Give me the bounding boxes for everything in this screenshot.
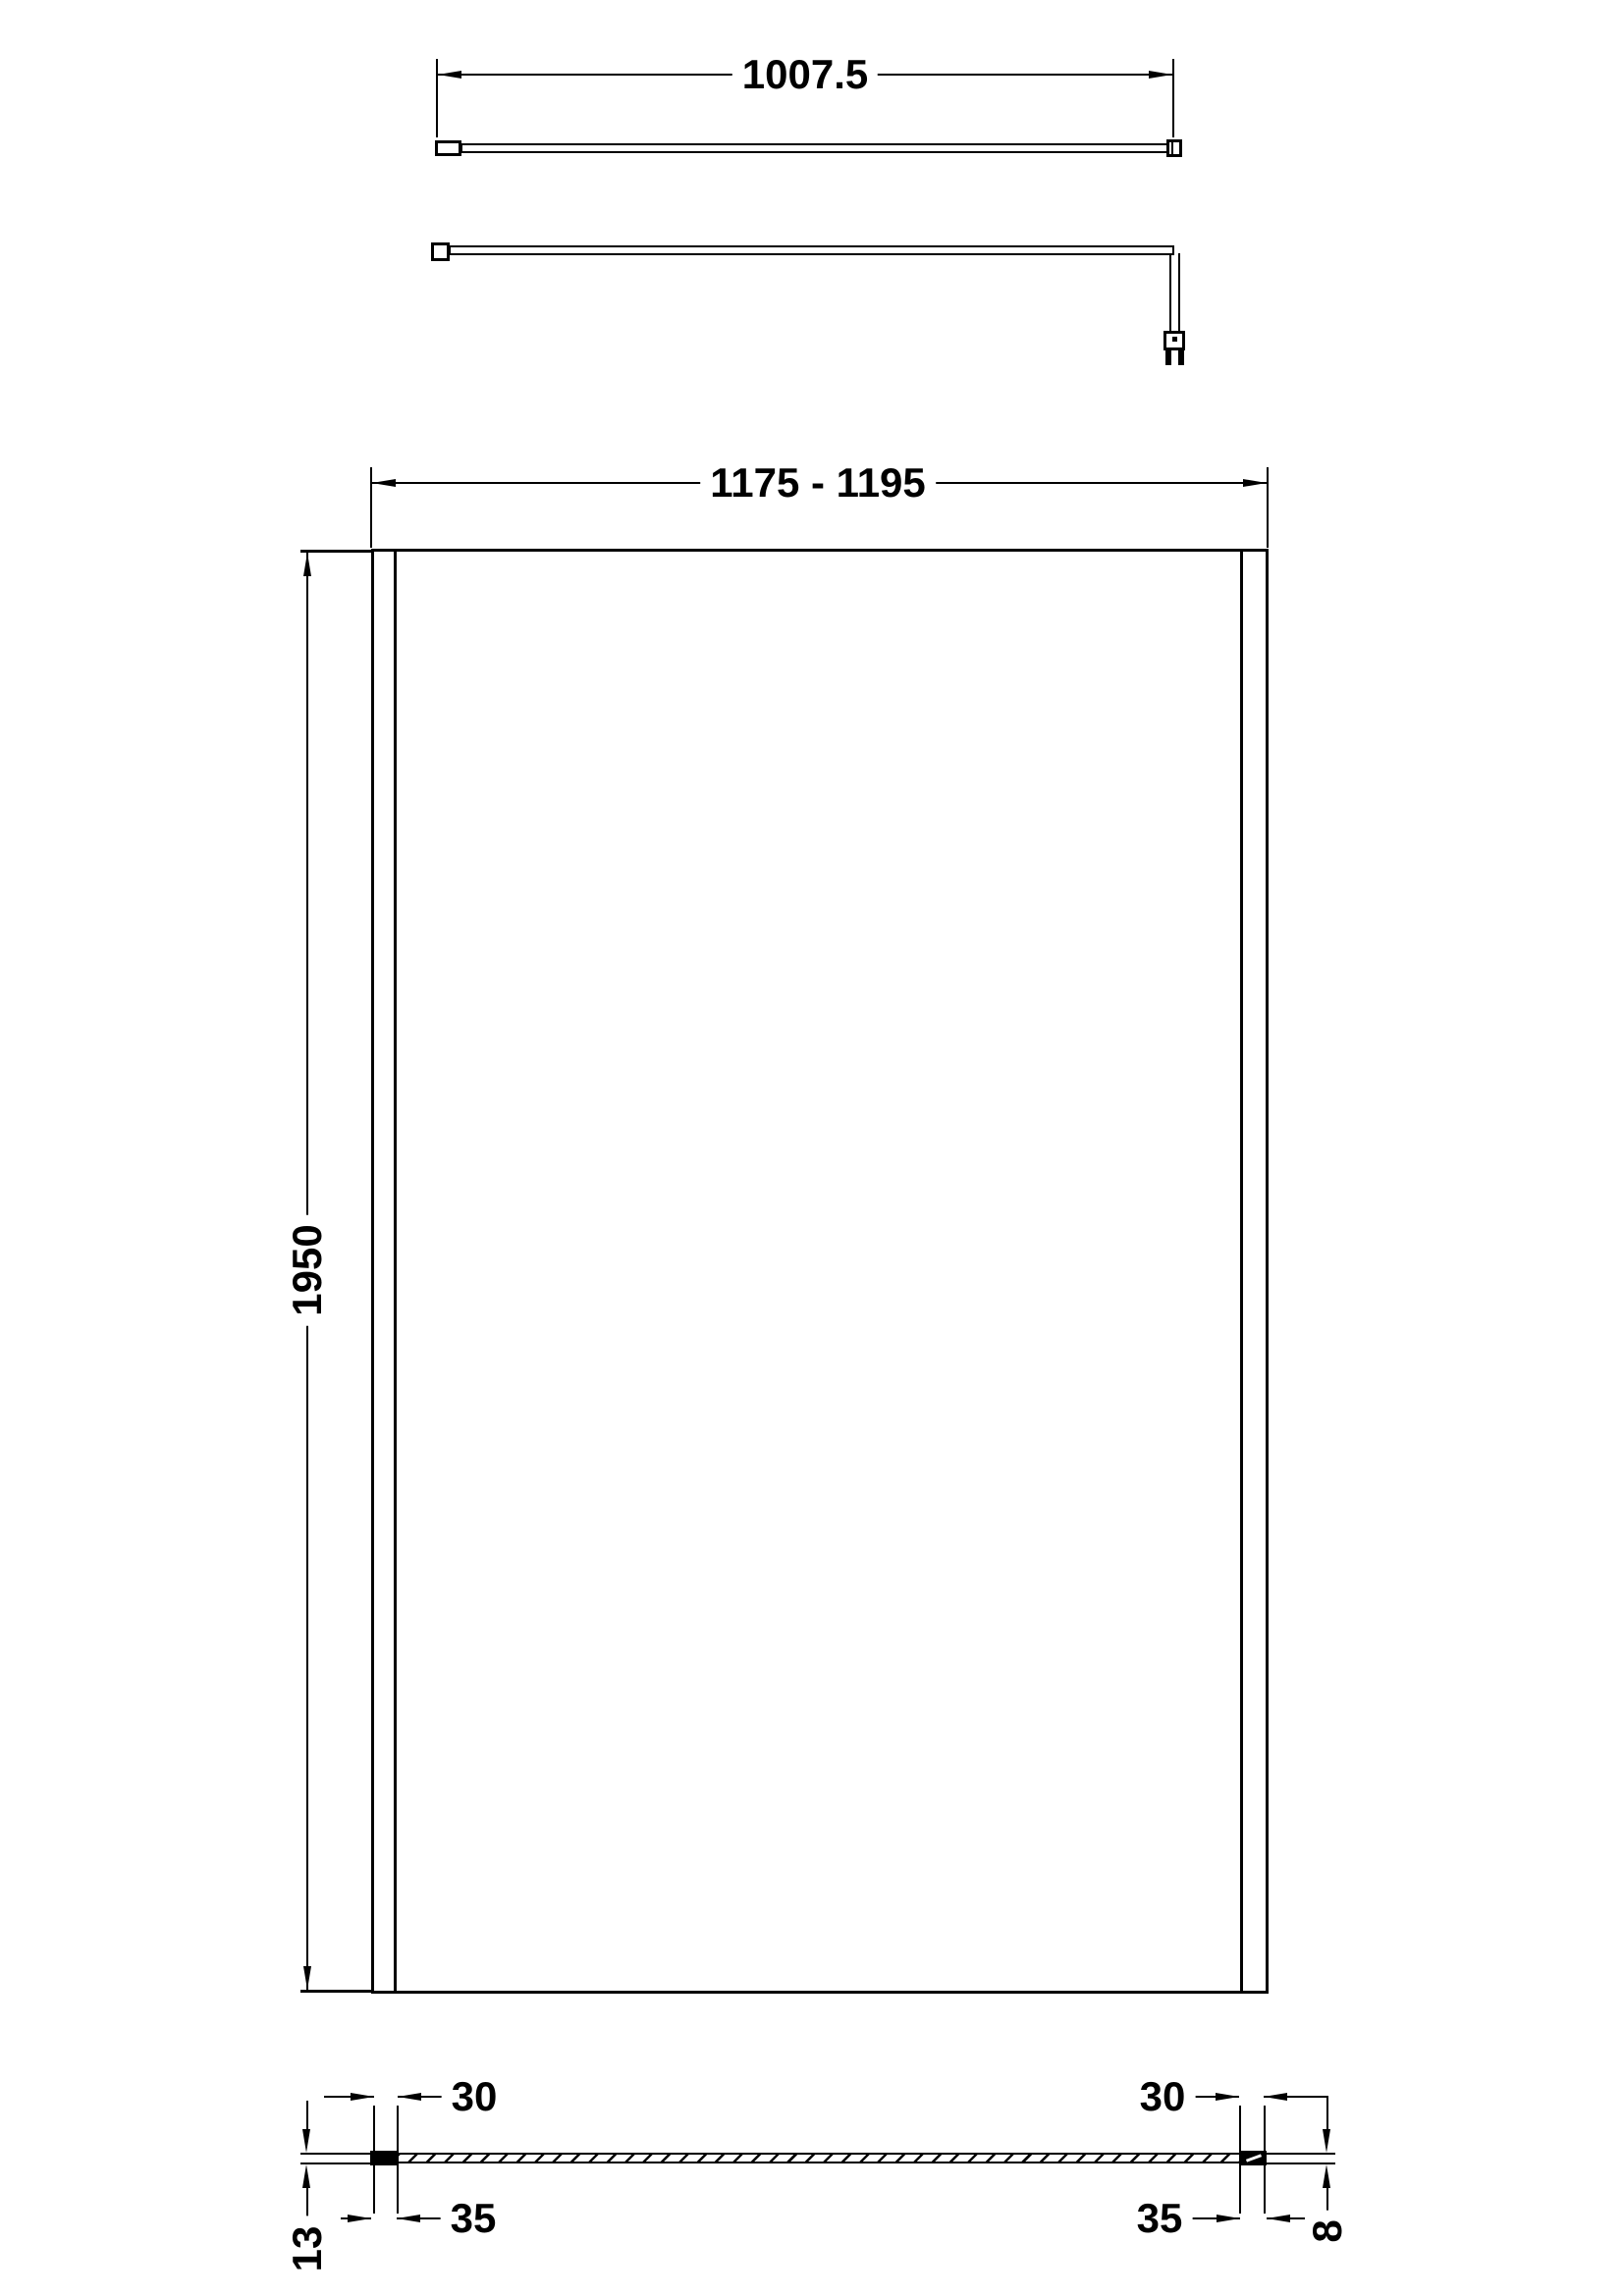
thickness-dim-arrow-up <box>1323 2164 1330 2188</box>
profile-right-dim-arrow-a <box>1217 2215 1240 2222</box>
depth-dim-line-bottom <box>306 2183 308 2216</box>
arm-bar-plan <box>460 143 1168 153</box>
glass-thickness-label: 8 <box>1305 2210 1350 2252</box>
glass-section-hatched <box>397 2153 1240 2163</box>
wall-profile-width-right-label: 35 <box>1127 2196 1193 2241</box>
height-dim-arrow-top <box>303 553 311 576</box>
arm-bar-elevation <box>449 245 1174 255</box>
arm-wall-bracket-plan <box>435 140 461 156</box>
wall-profile-right-slash <box>1246 2154 1262 2162</box>
overall-height-dimension-label: 1950 <box>285 1214 330 1325</box>
profile-left-dim-arrow-b <box>397 2215 420 2222</box>
arm-dim-arrow-left <box>438 71 461 79</box>
height-dim-extension-bottom <box>300 1990 371 1993</box>
depth-dim-arrow-down <box>302 2129 310 2153</box>
section-extension-right-b <box>1264 2106 1266 2214</box>
glass-inset-left-label: 30 <box>442 2074 508 2119</box>
width-dim-extension-right <box>1267 467 1269 548</box>
arm-dim-extension-right <box>1172 59 1174 137</box>
glass-clamp-fork-left <box>1165 350 1171 365</box>
arm-glass-clamp-plan <box>1166 139 1182 157</box>
glass-clamp-screw <box>1172 337 1177 342</box>
glass-panel-outline <box>371 549 1269 1994</box>
depth-dim-extension-bottom <box>300 2163 370 2164</box>
profile-right-dim-arrow-b <box>1267 2215 1290 2222</box>
thickness-dim-arrow-down <box>1323 2129 1330 2153</box>
wall-profile-left-front <box>394 552 397 1991</box>
height-dim-arrow-bottom <box>303 1966 311 1990</box>
overall-width-dimension-label: 1175 - 1195 <box>700 460 936 506</box>
inset-left-dim-arrow-a <box>351 2093 374 2101</box>
glass-inset-right-label: 30 <box>1130 2074 1196 2119</box>
section-extension-right-a <box>1239 2106 1241 2214</box>
inset-right-dim-arrow-b <box>1264 2093 1287 2101</box>
depth-dim-extension-top <box>300 2153 370 2155</box>
width-dim-arrow-left <box>372 479 396 487</box>
arm-drop-strut <box>1169 253 1180 332</box>
wall-profile-right-section <box>1239 2151 1267 2165</box>
wall-profile-depth-label: 13 <box>285 2216 330 2282</box>
wall-profile-right-front <box>1240 552 1243 1991</box>
section-extension-left-b <box>397 2106 399 2214</box>
profile-left-dim-arrow-a <box>348 2215 371 2222</box>
width-dim-arrow-right <box>1243 479 1267 487</box>
section-extension-left-a <box>373 2106 375 2214</box>
wall-profile-width-left-label: 35 <box>441 2196 507 2241</box>
thickness-dim-extension-top <box>1267 2153 1335 2155</box>
arm-glass-clamp-plan-notch <box>1171 141 1173 155</box>
glass-clamp-fork-right <box>1178 350 1184 365</box>
inset-right-dim-arrow-a <box>1216 2093 1239 2101</box>
arm-length-dimension-label: 1007.5 <box>732 52 878 97</box>
depth-dim-arrow-up <box>302 2164 310 2188</box>
inset-left-dim-arrow-b <box>398 2093 421 2101</box>
technical-drawing-canvas: 1007.5 1175 - 1195 1950 <box>0 0 1623 2296</box>
arm-dim-arrow-right <box>1149 71 1172 79</box>
arm-wall-bracket-elevation <box>431 242 450 261</box>
